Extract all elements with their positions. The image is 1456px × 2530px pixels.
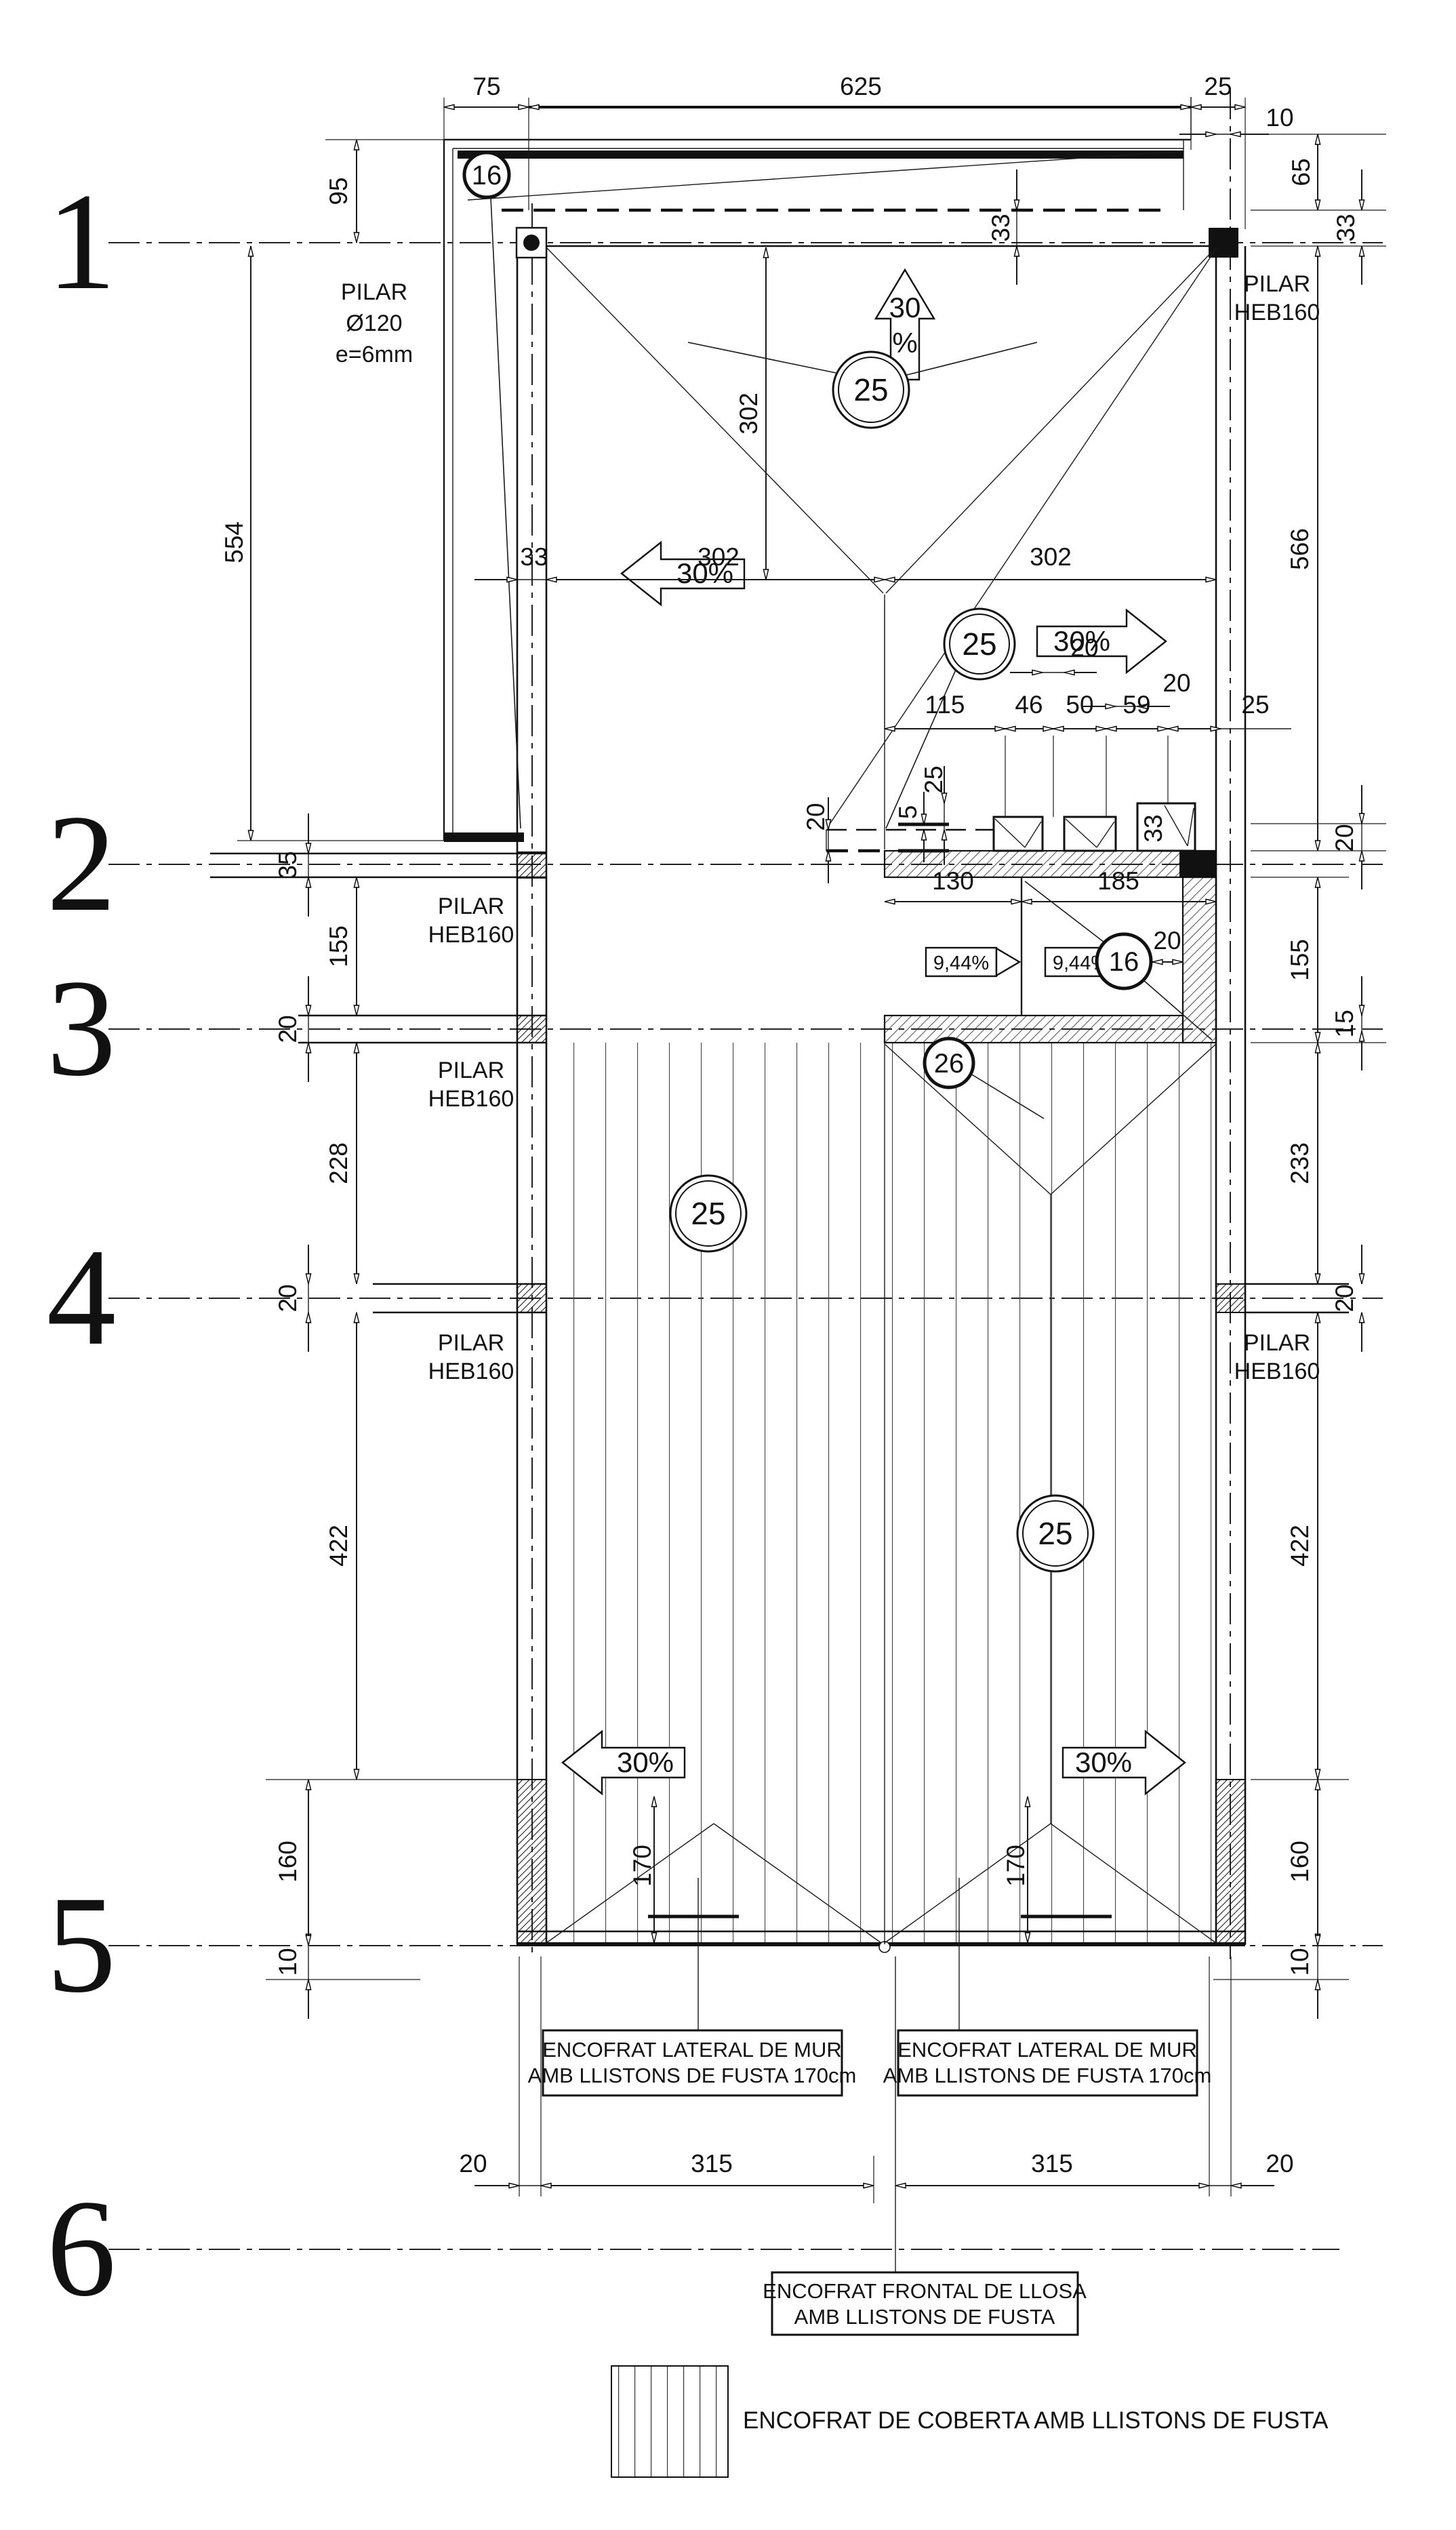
dim-label: 10	[274, 1948, 302, 1975]
slope-label: 30%	[617, 1746, 674, 1778]
dim-label: 46	[1015, 691, 1043, 719]
dim-label: 20	[1153, 927, 1181, 955]
slope-label: 30	[889, 292, 921, 323]
dim-label: 554	[220, 521, 248, 563]
pilar-label: PILAR	[341, 279, 407, 305]
dim-label: 33	[987, 214, 1015, 241]
dim-label: 160	[1286, 1841, 1314, 1883]
dim-label: 566	[1286, 528, 1314, 570]
wall-end-right	[1216, 1780, 1245, 1944]
ramp-arrow-a-head	[996, 948, 1019, 976]
room-pilar	[1179, 851, 1216, 877]
formwork-band-end-cap	[444, 832, 524, 842]
dim-label: 20	[1331, 824, 1358, 851]
wall-end-left	[517, 1780, 546, 1944]
dim-label: 155	[1286, 939, 1314, 981]
grid-number: 2	[47, 786, 117, 940]
dim-label: 33	[520, 543, 548, 571]
dim-label: 65	[1287, 158, 1315, 186]
dim-label: 25	[920, 765, 948, 793]
pilar-heb-label: PILAR	[438, 1330, 504, 1356]
dim-label: 20	[1266, 2150, 1293, 2177]
marker-26: 26	[934, 1049, 965, 1079]
dim-label: 422	[325, 1525, 352, 1567]
marker-25: 25	[691, 1196, 725, 1231]
pilar-label: Ø120	[346, 310, 402, 336]
pilar-o120-section	[523, 235, 540, 251]
dim-label: 5	[894, 805, 922, 820]
dim-label: 20	[1162, 669, 1190, 697]
dim-label: 33	[1139, 814, 1167, 842]
dim-label: 228	[325, 1142, 352, 1184]
dim-label: 170	[628, 1845, 656, 1887]
pilar-heb160-grid4-left	[517, 1284, 546, 1312]
dim-label: 50	[1066, 691, 1093, 719]
dim-label: 20	[274, 1284, 302, 1312]
dim-label: 35	[274, 851, 302, 879]
dim-label: 59	[1123, 691, 1150, 719]
pilar-heb-label: HEB160	[1234, 1359, 1320, 1384]
dim-label: 160	[274, 1841, 302, 1883]
dim-label: 20	[1331, 1284, 1358, 1312]
roof-sheathing	[546, 1043, 1216, 1944]
dim-label: 315	[691, 2150, 733, 2177]
grid-number: 6	[47, 2171, 117, 2325]
dim-label: 315	[1031, 2150, 1073, 2177]
pilar-label: e=6mm	[336, 342, 413, 367]
insert-plates: 33	[898, 803, 1195, 851]
pilar-heb-label: PILAR	[438, 893, 504, 919]
dim-label: 233	[1286, 1142, 1314, 1184]
note-text: AMB LLISTONS DE FUSTA 170cm	[528, 2064, 857, 2087]
dim-label: 10	[1286, 1948, 1314, 1975]
grid-number: 4	[47, 1220, 117, 1374]
pilar-heb-label: HEB160	[428, 1359, 514, 1384]
dim-label: 25	[1204, 73, 1232, 100]
pilar-heb160-grid2	[517, 852, 546, 878]
dim-label: 33	[1332, 214, 1360, 241]
dim-label: 20	[802, 803, 830, 830]
dim-label: 115	[925, 691, 965, 719]
dim-label: 10	[1266, 104, 1293, 132]
dim-label: 170	[1002, 1845, 1030, 1887]
legend-text: ENCOFRAT DE COBERTA AMB LLISTONS DE FUST…	[743, 2407, 1329, 2434]
dim-label: 302	[1030, 543, 1072, 571]
dim-label: 75	[472, 73, 500, 100]
dim-label: 302	[697, 543, 740, 571]
note-text: AMB LLISTONS DE FUSTA	[794, 2305, 1055, 2329]
pilar-heb-label: PILAR	[438, 1058, 504, 1083]
pilar-heb-label: HEB160	[428, 922, 514, 948]
coberta-stripes	[546, 1043, 1216, 1944]
dim-label: 20	[274, 1015, 302, 1043]
dim-label: 185	[1097, 867, 1139, 895]
annotation-boxes: ENCOFRAT LATERAL DE MUR AMB LLISTONS DE …	[528, 1878, 1329, 2477]
dim-label: 95	[325, 177, 352, 205]
grid-number: 1	[47, 165, 117, 319]
marker-25: 25	[853, 372, 888, 407]
dim-label: 25	[1241, 691, 1269, 719]
marker-16: 16	[472, 161, 502, 190]
dim-label: 302	[735, 393, 763, 435]
note-text: ENCOFRAT LATERAL DE MUR	[897, 2038, 1197, 2062]
grid-number: 5	[47, 1868, 117, 2022]
room-bottom-wall	[885, 1016, 1183, 1043]
dim-label: 422	[1286, 1525, 1314, 1567]
dim-label: 15	[1331, 1009, 1358, 1037]
dim-label: 625	[840, 73, 882, 100]
formwork-panel-dark-band	[458, 150, 1184, 159]
grid-number: 3	[47, 951, 117, 1105]
pilar-heb160-grid3	[517, 1016, 546, 1043]
formwork-plan-page: 1 2 3 4 5 6	[0, 0, 1456, 2530]
pilar-heb-label: PILAR	[1244, 1330, 1310, 1356]
note-text: ENCOFRAT LATERAL DE MUR	[542, 2038, 842, 2062]
pilar-heb160-grid4-right	[1216, 1284, 1245, 1312]
legend-swatch	[611, 2366, 728, 2477]
slope-label: 30%	[1075, 1746, 1132, 1778]
pilar-heb-label: HEB160	[428, 1086, 514, 1112]
marker-25: 25	[962, 626, 996, 662]
dim-label: 20	[459, 2150, 487, 2177]
pilar-heb-label: PILAR	[1244, 271, 1310, 297]
dim-label: 20	[1070, 634, 1098, 662]
floor-plan-canvas: 1 2 3 4 5 6	[0, 0, 1456, 2530]
marker-25: 25	[1038, 1516, 1072, 1551]
note-text: ENCOFRAT FRONTAL DE LLOSA	[763, 2279, 1087, 2303]
ramp-label: 9,44%	[933, 952, 989, 974]
marker-16: 16	[1109, 947, 1139, 977]
slope-label: %	[892, 327, 917, 359]
dim-label: 155	[325, 925, 352, 967]
dim-label: 130	[932, 867, 974, 895]
pilar-heb-label: HEB160	[1234, 300, 1320, 325]
note-text: AMB LLISTONS DE FUSTA 170cm	[883, 2064, 1212, 2087]
